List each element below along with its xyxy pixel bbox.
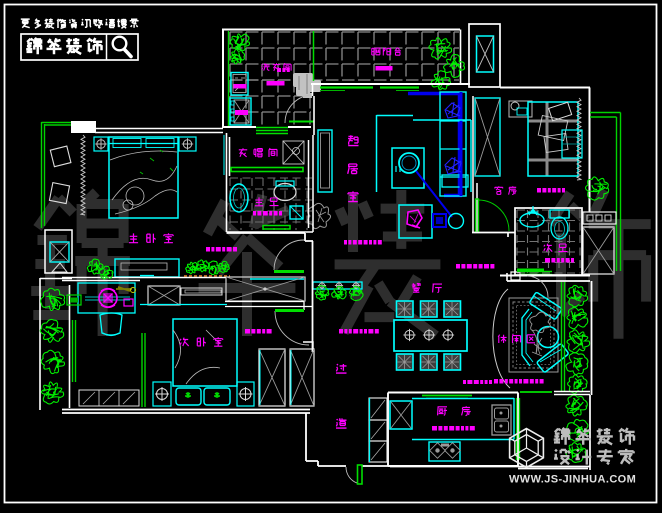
svg-text:WWW.JS-JINHUA.COM: WWW.JS-JINHUA.COM <box>509 474 636 486</box>
